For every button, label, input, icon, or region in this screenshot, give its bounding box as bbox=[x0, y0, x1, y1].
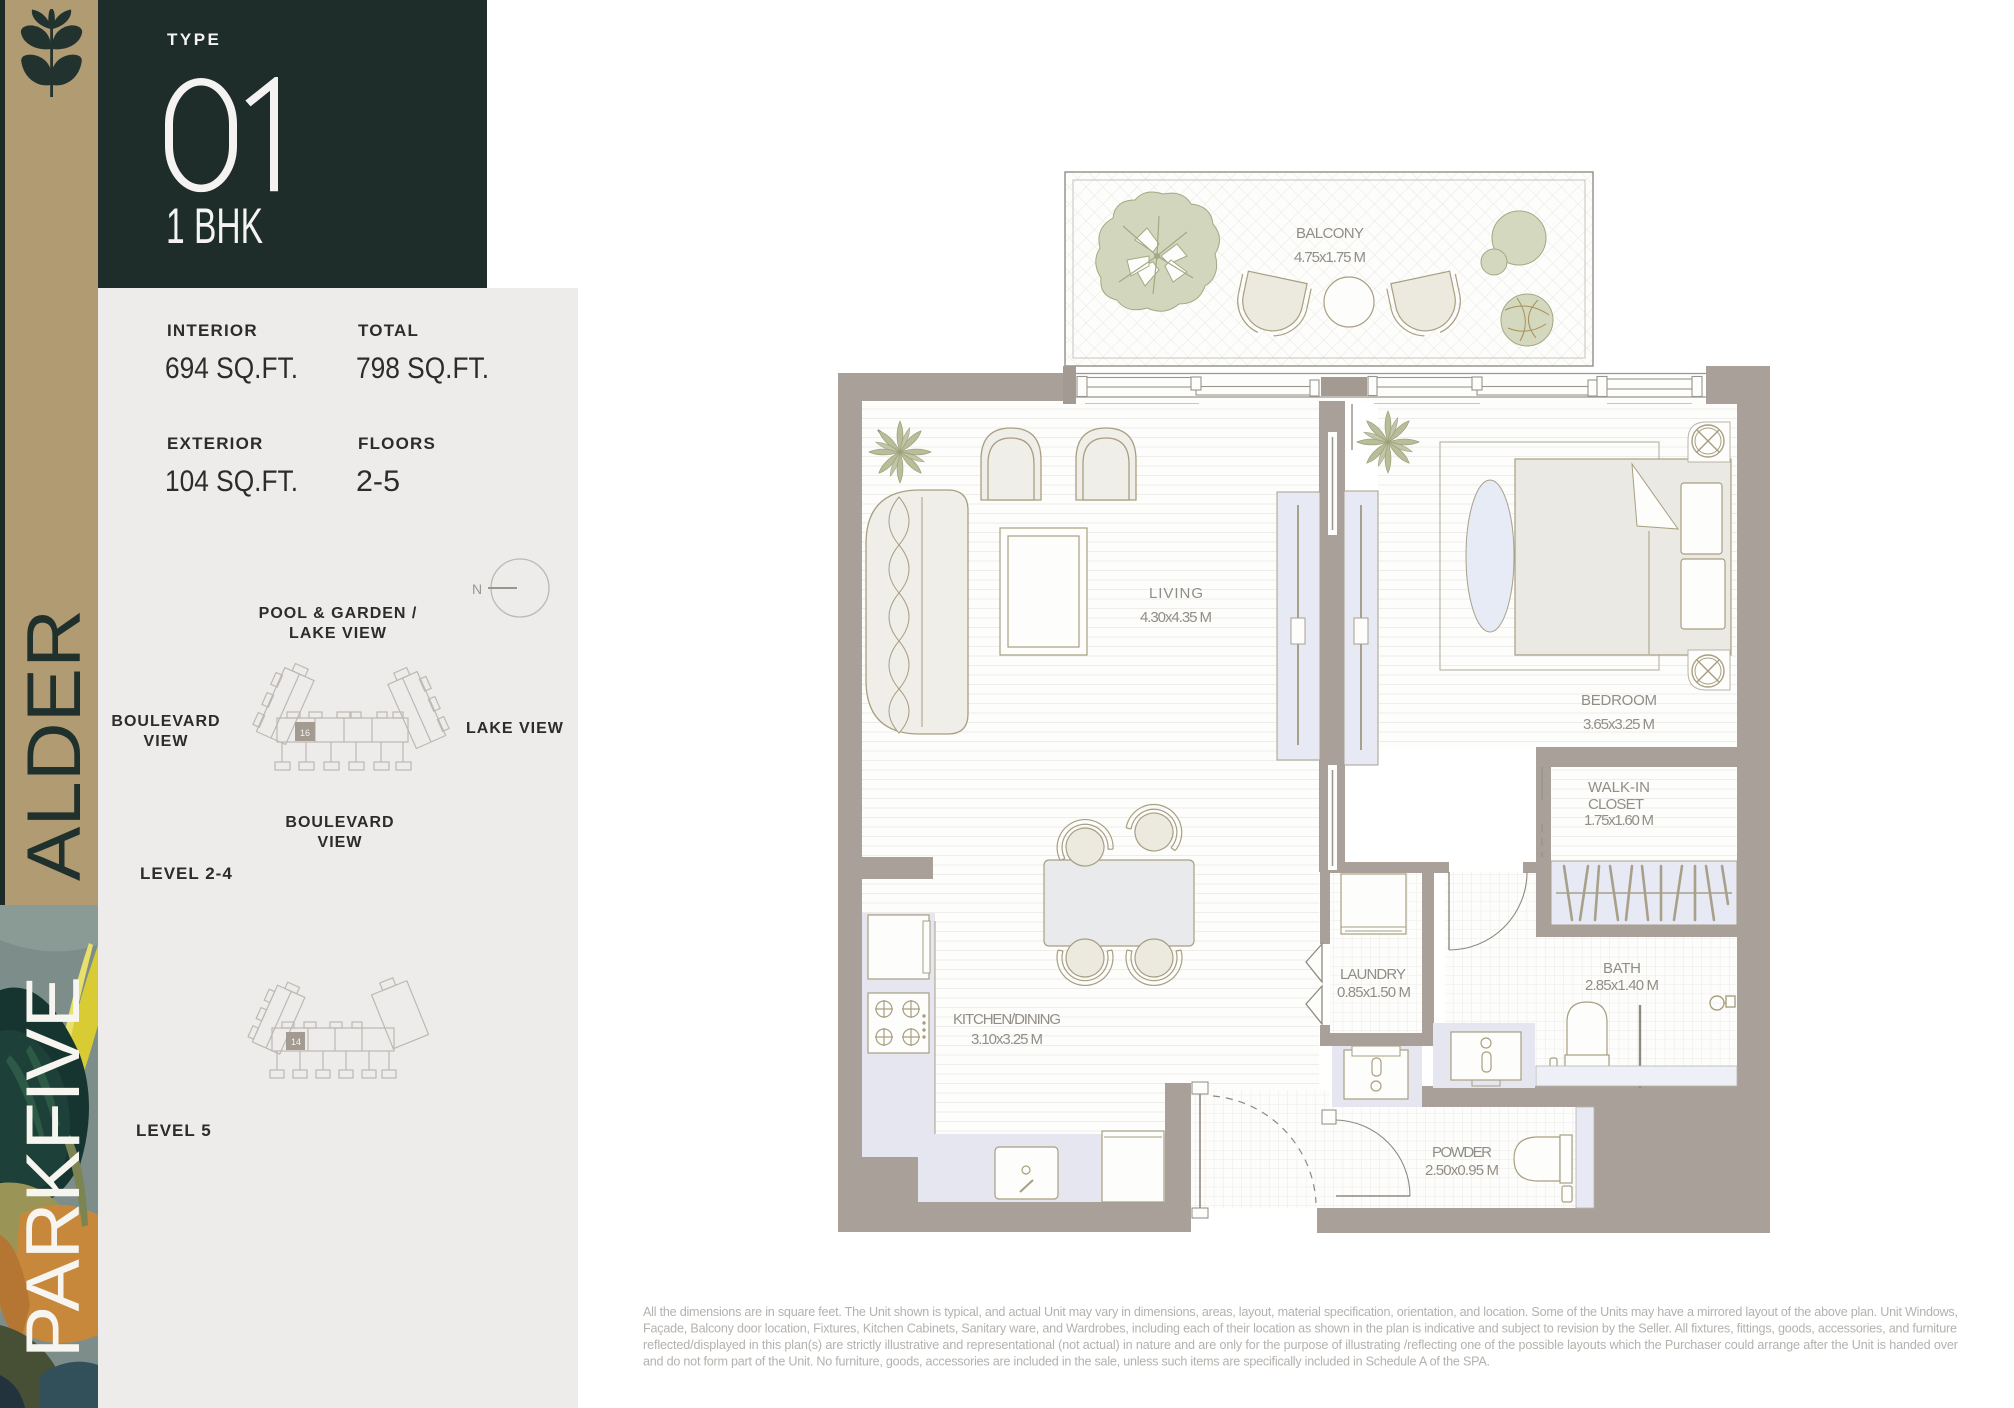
svg-text:Façade, Balcony door location,: Façade, Balcony door location, Fixtures,… bbox=[643, 1322, 1957, 1336]
svg-text:reflected/displayed in this pl: reflected/displayed in this plan(s) are … bbox=[643, 1338, 1958, 1352]
svg-text:and do not form part of the Un: and do not form part of the Unit. No fur… bbox=[643, 1355, 1490, 1369]
svg-text:All the dimensions are in squa: All the dimensions are in square feet. T… bbox=[643, 1305, 1958, 1319]
